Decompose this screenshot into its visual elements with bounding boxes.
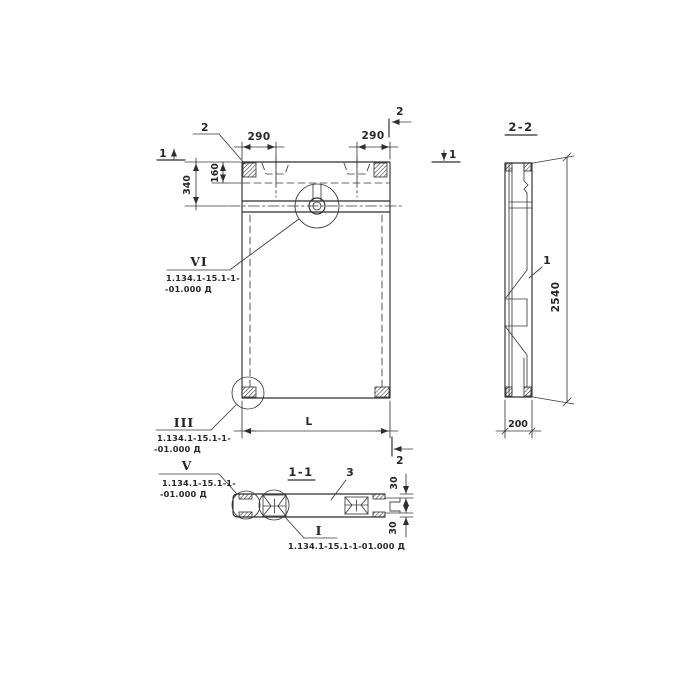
dim-290-right-label: 290 (361, 130, 384, 142)
detail-v-annotation: V 1.134.1-15.1-1- -01.000 Д (159, 458, 237, 499)
cut-mark-1-right: 1 (432, 149, 460, 162)
detail-i-numeral: I (316, 523, 323, 538)
dim-30-top: 30 (389, 474, 413, 506)
dim-length: L (234, 401, 398, 438)
detail-iii-annotation: III 1.134.1-15.1-1- -01.000 Д (154, 405, 236, 454)
dim-2540: 2540 (533, 153, 574, 406)
dim-290-right: 290 (349, 130, 398, 178)
section-2-2-label: 2-2 (508, 120, 533, 134)
section-2-2-view: 2-2 1 (496, 120, 574, 438)
panel-outline (242, 162, 390, 398)
cut-mark-1-right-label: 1 (449, 149, 457, 161)
section-1-1-view: 1-1 3 (159, 458, 413, 551)
top-anchor-plates (243, 163, 387, 177)
detail-vi-numeral: VI (189, 254, 208, 269)
dim-2540-label: 2540 (550, 282, 562, 313)
main-view-dimensions: 290 290 160 340 (182, 130, 398, 438)
cut-mark-2-top-label: 2 (396, 106, 404, 118)
detail-v-ref-line1: 1.134.1-15.1-1- (162, 478, 236, 488)
detail-iii-ref-line2: -01.000 Д (154, 444, 201, 454)
main-elevation-view (229, 157, 402, 409)
cut-mark-1-left-label: 1 (159, 148, 167, 160)
dim-30-bottom-label: 30 (388, 521, 399, 535)
technical-drawing-canvas: 290 290 160 340 (0, 0, 700, 700)
detail-vi-ref-line1: 1.134.1-15.1-1- (166, 273, 240, 283)
callout-2-label: 2 (201, 122, 209, 134)
cut-mark-2-bottom-label: 2 (396, 455, 404, 467)
detail-i-ref: 1.134.1-15.1-1-01.000 Д (288, 541, 405, 551)
cut-mark-2-top: 2 (389, 106, 411, 137)
keyway-recesses (262, 157, 370, 197)
dim-length-label: L (305, 416, 312, 428)
void-channel-mid (345, 497, 368, 514)
section-1-1-header: 1-1 (288, 465, 315, 480)
dim-200-label: 200 (508, 419, 528, 430)
part-3-label: 3 (346, 466, 354, 479)
part-1-label: 1 (543, 254, 551, 267)
void-channel-left (263, 495, 286, 516)
dim-30-bottom: 30 (388, 505, 413, 537)
dim-30-top-label: 30 (389, 476, 400, 490)
cut-mark-2-bottom: 2 (392, 437, 413, 467)
detail-v-ref-line2: -01.000 Д (160, 489, 207, 499)
section-2-2-header: 2-2 (505, 120, 537, 135)
dim-340-label: 340 (182, 175, 193, 195)
detail-i-annotation: I 1.134.1-15.1-1-01.000 Д (284, 516, 405, 551)
callout-2-upper-left: 2 (193, 122, 245, 164)
dim-200: 200 (496, 400, 541, 438)
section-2-2-body (505, 163, 532, 397)
section-1-1-label: 1-1 (288, 465, 313, 479)
drawing-sheet: 290 290 160 340 (0, 0, 700, 700)
detail-vi-annotation: VI 1.134.1-15.1-1- -01.000 Д (165, 219, 299, 294)
detail-v-numeral: V (181, 458, 193, 473)
detail-iii-ref-line1: 1.134.1-15.1-1- (157, 433, 231, 443)
lifting-hole (309, 184, 325, 214)
cut-mark-1-left: 1 (157, 148, 185, 160)
detail-vi-ref-line2: -01.000 Д (165, 284, 212, 294)
dim-160: 160 (210, 162, 241, 183)
detail-iii-numeral: III (174, 415, 195, 430)
part-3-callout: 3 (331, 466, 354, 500)
dim-290-left-label: 290 (247, 131, 270, 143)
dim-160-label: 160 (210, 163, 221, 183)
